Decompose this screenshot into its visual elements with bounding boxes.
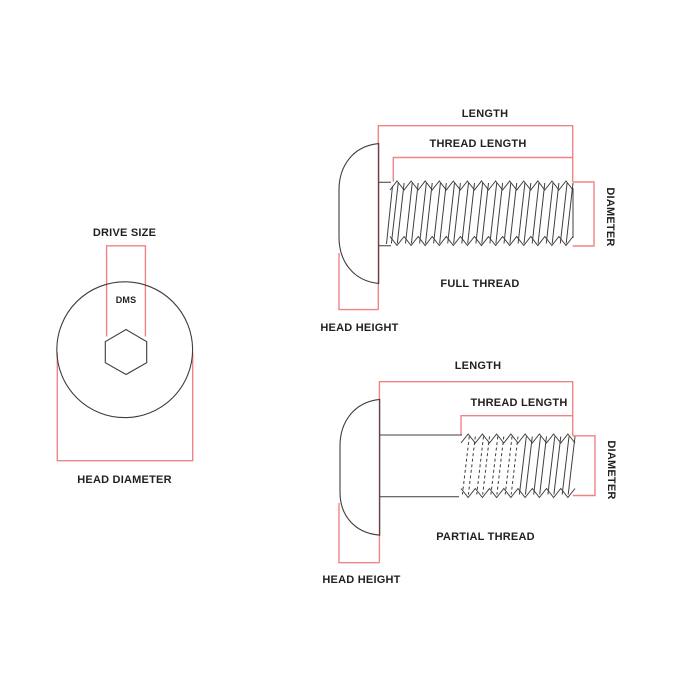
length-label-full: LENGTH	[462, 108, 509, 120]
head-height-dimension-box-partial	[339, 503, 379, 563]
thread-crests-partial	[461, 434, 575, 498]
full-thread-label: FULL THREAD	[440, 278, 519, 290]
screw-dimension-diagram: DRIVE SIZE DMS HEAD DIAMETER LENGTH THRE…	[0, 0, 700, 700]
thread-flanks-partial-dashed	[462, 437, 518, 495]
thread-length-dimension-box-full	[393, 158, 572, 182]
thread-length-dimension-box-partial	[461, 416, 573, 436]
drive-size-dimension-box	[107, 246, 146, 337]
shank-lines-partial	[380, 435, 462, 497]
head-diameter-dimension-box	[57, 353, 192, 461]
length-label-partial: LENGTH	[455, 360, 502, 372]
drive-size-label: DRIVE SIZE	[93, 227, 156, 239]
partial-thread-label: PARTIAL THREAD	[436, 531, 535, 543]
thread-flanks-partial-solid	[519, 437, 575, 495]
hex-socket-outline	[105, 330, 146, 375]
diameter-dimension-box-partial	[573, 436, 595, 496]
head-top-view	[57, 246, 193, 461]
diameter-dimension-box-full	[573, 182, 594, 246]
head-height-label-partial: HEAD HEIGHT	[322, 574, 400, 586]
thread-length-label-partial: THREAD LENGTH	[471, 397, 568, 409]
head-height-label-full: HEAD HEIGHT	[320, 322, 398, 334]
diameter-label-full: DIAMETER	[604, 187, 616, 246]
thread-flanks-full	[391, 183, 573, 244]
dms-marking-label: DMS	[116, 295, 137, 305]
thread-length-label-full: THREAD LENGTH	[430, 138, 527, 150]
button-head-outline-partial	[340, 399, 380, 535]
button-head-outline-full	[339, 144, 379, 284]
head-diameter-label: HEAD DIAMETER	[77, 474, 172, 486]
diagram-line-art	[0, 0, 700, 700]
diameter-label-partial: DIAMETER	[605, 440, 617, 499]
